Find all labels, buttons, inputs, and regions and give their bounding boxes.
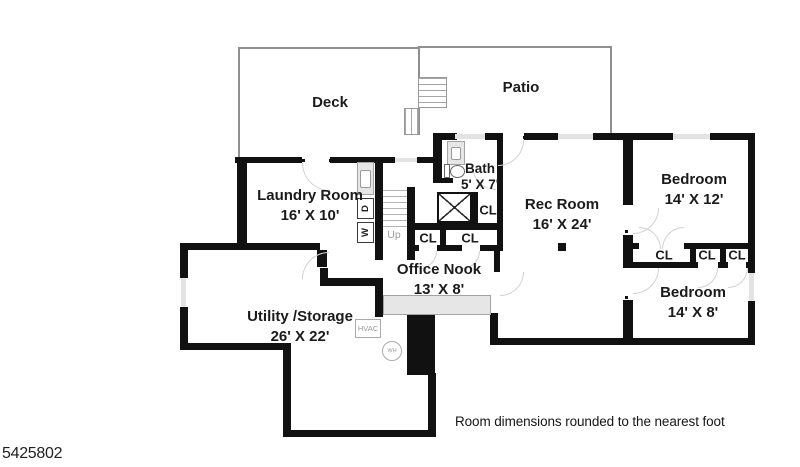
bedroom1-label: Bedroom 14' X 12' (661, 170, 727, 210)
exterior-stairs-lower (404, 108, 419, 135)
wall (433, 133, 442, 180)
room-name: Rec Room (525, 195, 599, 215)
water-heater: WH (382, 341, 402, 361)
wall (524, 133, 558, 140)
door-arc (498, 140, 524, 166)
wall (433, 178, 453, 183)
patio-outline-right (610, 46, 612, 135)
footer-note: Room dimensions rounded to the nearest f… (455, 414, 725, 429)
room-name: Utility /Storage (247, 307, 353, 327)
interior-stairs (383, 190, 407, 230)
patio-outline-top (418, 46, 612, 48)
deck-outline-top (238, 47, 420, 49)
closet-label: CL (461, 231, 478, 246)
deck-label: Deck (312, 93, 348, 113)
wall (437, 245, 462, 251)
door-arc (633, 268, 659, 294)
window (181, 278, 186, 307)
room-dims: 16' X 10' (257, 206, 363, 226)
washer-label: W (360, 228, 371, 237)
deck-outline-left (238, 47, 240, 157)
room-dims: 26' X 22' (247, 327, 353, 347)
wall (623, 235, 633, 268)
wall (320, 278, 383, 286)
wall (237, 157, 247, 249)
room-name: Bedroom (660, 283, 726, 303)
bath-sink-basin-icon (451, 147, 461, 160)
room-dims: 13' X 8' (397, 280, 481, 300)
door-arc (662, 227, 684, 249)
chimney-box (437, 192, 472, 223)
room-dims: 16' X 24' (525, 215, 599, 235)
wall (407, 223, 503, 230)
stairs-up-label: Up (387, 229, 400, 241)
wall (472, 192, 478, 223)
window (673, 134, 710, 139)
hvac-label: HVAC (358, 324, 378, 333)
room-dims: 14' X 8' (660, 303, 726, 323)
door-arc (500, 272, 524, 296)
wall (440, 230, 446, 245)
room-name: Laundry Room (257, 186, 363, 206)
wall (623, 300, 633, 338)
closet-label: CL (479, 203, 496, 218)
floor-plan-canvas: HVAC WH D W Deck Patio Laundry Room 16' … (0, 0, 800, 467)
wall (180, 243, 320, 250)
closet-label: CL (655, 248, 672, 263)
wall (593, 133, 673, 140)
door-jamb-marker (625, 230, 628, 233)
door-jamb-marker (498, 136, 501, 139)
room-name: Bath (461, 161, 499, 177)
wall (494, 250, 500, 272)
bedroom2-label: Bedroom 14' X 8' (660, 283, 726, 323)
rec-room-label: Rec Room 16' X 24' (525, 195, 599, 235)
support-column (558, 243, 566, 251)
room-name: Office Nook (397, 260, 481, 280)
closet-label: CL (419, 231, 436, 246)
door-arc (639, 227, 661, 249)
room-name: Bedroom (661, 170, 727, 190)
closet-label: CL (728, 248, 745, 263)
wall (407, 187, 415, 260)
wall (490, 313, 498, 345)
room-dims: 5' X 7' (461, 177, 499, 193)
wall (623, 140, 633, 205)
wall (720, 249, 726, 262)
door-arc (728, 268, 748, 288)
wall (283, 343, 291, 437)
wall (690, 249, 696, 262)
wall (495, 338, 755, 345)
wall-column (407, 315, 435, 375)
door-jamb-marker (523, 136, 526, 139)
laundry-room-label: Laundry Room 16' X 10' (257, 186, 363, 226)
patio-label: Patio (503, 78, 540, 98)
hvac-unit: HVAC (355, 319, 381, 338)
wall (690, 262, 698, 268)
water-heater-label: WH (387, 348, 396, 354)
listing-id: 5425802 (2, 445, 62, 463)
exterior-stairs-upper (418, 77, 447, 108)
utility-storage-label: Utility /Storage 26' X 22' (247, 307, 353, 347)
wall (428, 373, 436, 437)
door-arc (302, 252, 329, 279)
room-dims: 14' X 12' (661, 190, 727, 210)
office-nook-label: Office Nook 13' X 8' (397, 260, 481, 300)
door-jamb-marker (329, 159, 332, 162)
wall (180, 243, 188, 278)
door-jamb-marker (625, 296, 628, 299)
door-jamb-marker (302, 159, 305, 162)
window (455, 134, 485, 139)
window (749, 273, 754, 301)
closet-label: CL (698, 248, 715, 263)
wall (718, 262, 728, 268)
wall (748, 133, 755, 273)
wall (283, 430, 436, 437)
bath-label: Bath 5' X 7' (461, 161, 499, 193)
window (558, 134, 593, 139)
window (395, 158, 417, 162)
wall (375, 157, 383, 260)
